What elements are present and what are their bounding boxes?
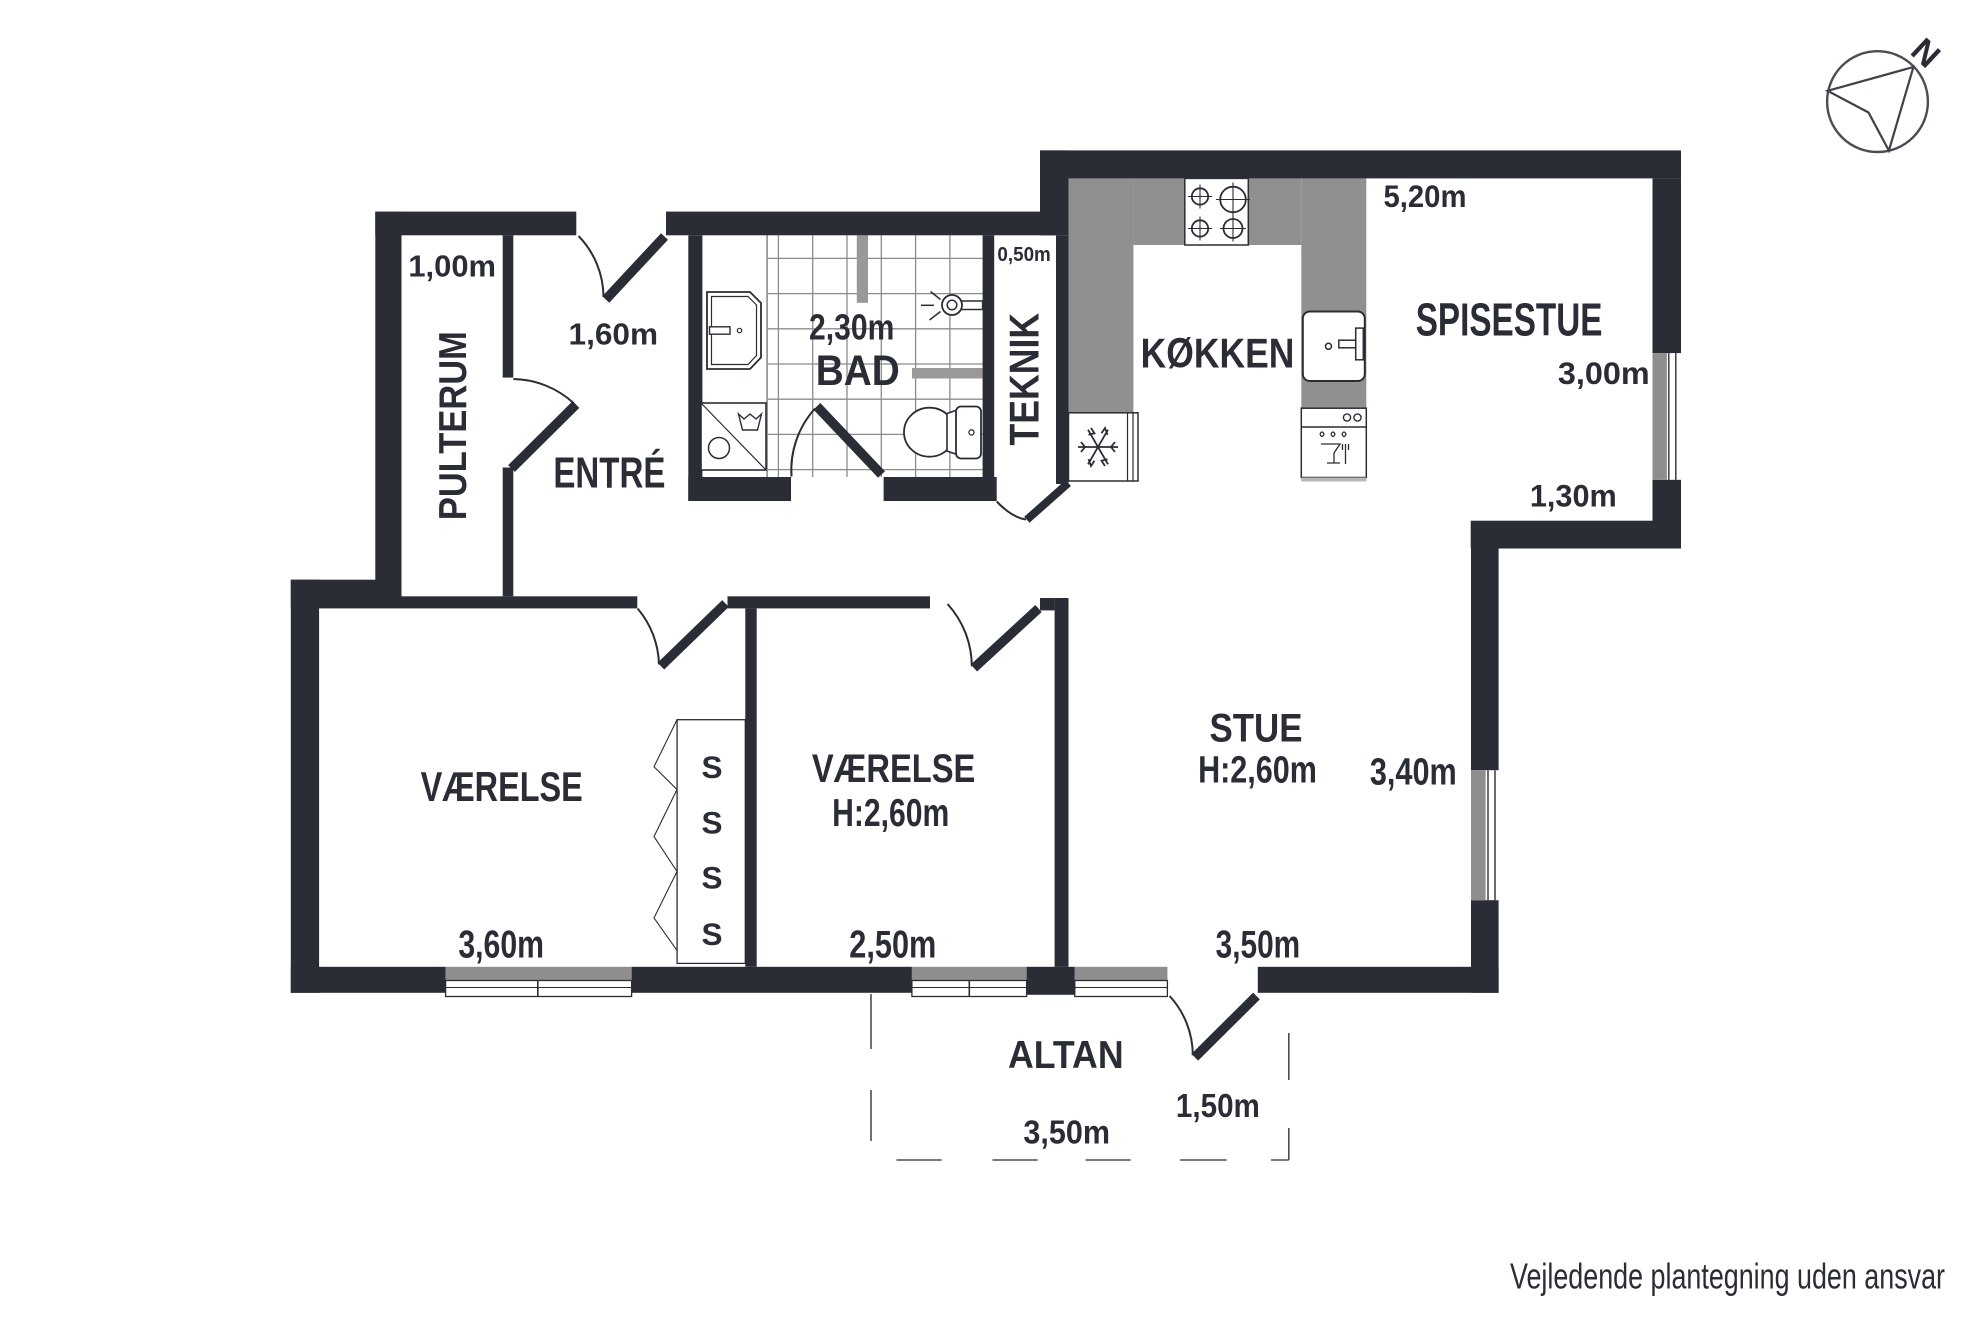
svg-text:SPISESTUE: SPISESTUE xyxy=(1416,294,1603,346)
svg-text:3,50m: 3,50m xyxy=(1023,1113,1110,1150)
svg-text:2,50m: 2,50m xyxy=(849,923,936,966)
svg-text:TEKNIK: TEKNIK xyxy=(1001,313,1048,446)
svg-text:Vejledende plantegning uden an: Vejledende plantegning uden ansvar xyxy=(1510,1256,1945,1297)
svg-text:BAD: BAD xyxy=(816,347,900,395)
svg-text:STUE: STUE xyxy=(1210,707,1303,751)
svg-text:1,30m: 1,30m xyxy=(1530,478,1617,514)
svg-text:PULTERUM: PULTERUM xyxy=(432,331,475,520)
svg-text:ALTAN: ALTAN xyxy=(1008,1034,1124,1077)
svg-text:3,50m: 3,50m xyxy=(1216,924,1301,967)
svg-text:5,20m: 5,20m xyxy=(1384,178,1467,214)
svg-text:ENTRÉ: ENTRÉ xyxy=(553,447,665,497)
svg-text:S: S xyxy=(701,860,722,896)
svg-text:1,50m: 1,50m xyxy=(1176,1087,1260,1124)
svg-text:0,50m: 0,50m xyxy=(997,243,1050,266)
svg-text:H:2,60m: H:2,60m xyxy=(1198,748,1317,791)
svg-text:3,60m: 3,60m xyxy=(458,923,544,966)
svg-text:1,00m: 1,00m xyxy=(408,248,496,283)
svg-text:2,30m: 2,30m xyxy=(809,307,894,348)
svg-text:VÆRELSE: VÆRELSE xyxy=(812,747,976,791)
svg-text:1,60m: 1,60m xyxy=(569,316,659,351)
svg-text:S: S xyxy=(701,805,722,841)
svg-text:VÆRELSE: VÆRELSE xyxy=(421,763,583,810)
svg-text:S: S xyxy=(701,916,722,952)
svg-text:S: S xyxy=(701,749,722,785)
svg-text:3,40m: 3,40m xyxy=(1370,751,1457,794)
svg-text:3,00m: 3,00m xyxy=(1558,355,1650,391)
svg-text:H:2,60m: H:2,60m xyxy=(832,792,949,835)
svg-text:KØKKEN: KØKKEN xyxy=(1141,330,1295,377)
